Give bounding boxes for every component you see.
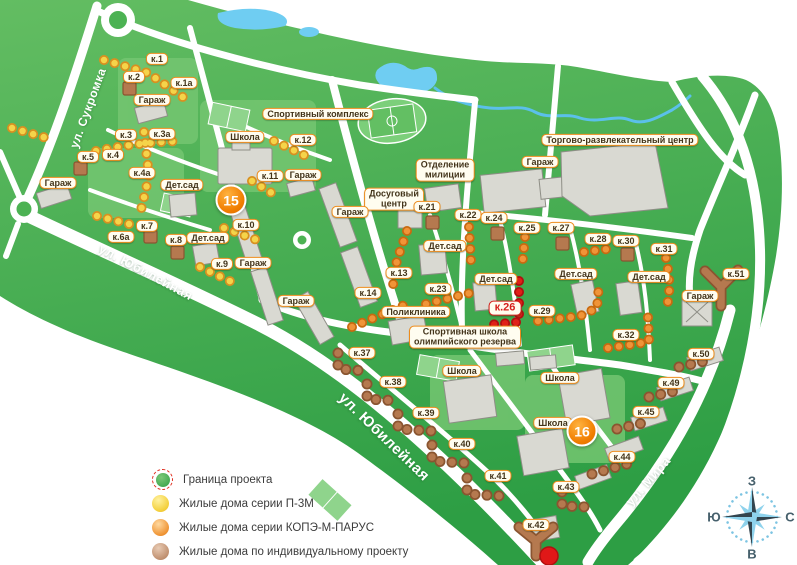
building-label[interactable]: к.8 xyxy=(165,234,187,246)
section-marker[interactable]: 16 xyxy=(567,416,598,447)
building-label[interactable]: к.24 xyxy=(480,212,507,224)
building-label[interactable]: Спортивный комплекс xyxy=(262,108,373,120)
legend-label: Граница проекта xyxy=(183,474,272,486)
building-label[interactable]: к.6а xyxy=(107,231,134,243)
building-label[interactable]: к.10 xyxy=(232,219,259,231)
compass-rose: З С В Ю xyxy=(700,465,797,565)
building-label[interactable]: к.49 xyxy=(657,377,684,389)
building-label[interactable]: к.44 xyxy=(608,451,635,463)
building-label[interactable]: Отделение милиции xyxy=(416,159,475,182)
orange-swatch-icon xyxy=(152,519,169,536)
legend-label: Жилые дома по индивидуальному проекту xyxy=(179,546,408,558)
section-marker[interactable]: 15 xyxy=(216,185,247,216)
building-label[interactable]: к.40 xyxy=(448,438,475,450)
building-label[interactable]: к.25 xyxy=(513,222,540,234)
building-label[interactable]: к.3 xyxy=(115,129,137,141)
building-label[interactable]: к.38 xyxy=(379,376,406,388)
boundary-swatch-icon xyxy=(152,469,173,490)
building-label[interactable]: к.30 xyxy=(612,235,639,247)
yellow-swatch-icon xyxy=(152,495,169,512)
building-label[interactable]: к.27 xyxy=(547,222,574,234)
street-label: ул. Сукромка xyxy=(67,66,109,150)
brown-swatch-icon xyxy=(152,543,169,560)
legend-item: Жилые дома серии КОПЭ-М-ПАРУС xyxy=(152,518,408,537)
building-label[interactable]: Дет.сад xyxy=(423,240,466,252)
building-label[interactable]: к.9 xyxy=(211,258,233,270)
building-label[interactable]: Гараж xyxy=(40,177,77,189)
building-label[interactable]: Гараж xyxy=(278,295,315,307)
building-label[interactable]: Дет.сад xyxy=(627,271,670,283)
building-label[interactable]: к.14 xyxy=(354,287,381,299)
building-label[interactable]: Торгово-развлекательный центр xyxy=(541,134,698,146)
site-plan-map: ул. Сукромкаул. Юбилейнаяул. Юбилейнаяул… xyxy=(0,0,797,565)
building-label[interactable]: к.5 xyxy=(77,151,99,163)
building-label[interactable]: к.43 xyxy=(552,481,579,493)
building-label[interactable]: к.32 xyxy=(612,329,639,341)
building-label[interactable]: Гараж xyxy=(682,290,719,302)
building-label[interactable]: к.21 xyxy=(413,201,440,213)
building-label[interactable]: к.45 xyxy=(632,406,659,418)
building-label[interactable]: Дет.сад xyxy=(160,179,203,191)
building-label[interactable]: к.31 xyxy=(650,243,677,255)
legend-label: Жилые дома серии КОПЭ-М-ПАРУС xyxy=(179,522,374,534)
building-label[interactable]: Поликлиника xyxy=(381,306,450,318)
building-label[interactable]: к.3а xyxy=(148,128,175,140)
building-label[interactable]: к.4а xyxy=(128,167,155,179)
building-label[interactable]: к.26 xyxy=(489,301,522,316)
building-label[interactable]: к.42 xyxy=(522,519,549,531)
building-label[interactable]: к.11 xyxy=(257,170,284,182)
building-label[interactable]: к.23 xyxy=(424,283,451,295)
building-label[interactable]: Дет.сад xyxy=(554,268,597,280)
legend-label: Жилые дома серии П-3М xyxy=(179,498,314,510)
building-label[interactable]: к.1 xyxy=(146,53,168,65)
building-label[interactable]: Школа xyxy=(225,131,264,143)
legend-item: Жилые дома серии П-3М xyxy=(152,494,408,513)
compass-south-label: Ю xyxy=(707,510,720,525)
building-label[interactable]: к.12 xyxy=(289,134,316,146)
building-label[interactable]: Гараж xyxy=(332,206,369,218)
building-label[interactable]: Школа xyxy=(540,372,579,384)
compass-west-label: З xyxy=(748,474,756,489)
building-label[interactable]: к.1а xyxy=(170,77,197,89)
building-label[interactable]: к.39 xyxy=(412,407,439,419)
legend-item: Жилые дома по индивидуальному проекту xyxy=(152,542,408,561)
building-label[interactable]: к.41 xyxy=(484,470,511,482)
building-label[interactable]: к.37 xyxy=(348,347,375,359)
map-legend: Граница проектаЖилые дома серии П-3МЖилы… xyxy=(152,470,408,565)
building-label[interactable]: Спортивная школа олимпийского резерва xyxy=(409,326,521,349)
building-label[interactable]: к.2 xyxy=(123,71,145,83)
building-label[interactable]: Гараж xyxy=(522,156,559,168)
building-label[interactable]: к.29 xyxy=(528,305,555,317)
compass-north-label: С xyxy=(785,510,794,525)
compass-east-label: В xyxy=(747,547,756,562)
building-label[interactable]: к.28 xyxy=(584,233,611,245)
legend-item: Граница проекта xyxy=(152,470,408,489)
building-label[interactable]: Дет.сад xyxy=(186,232,229,244)
building-label[interactable]: Школа xyxy=(442,365,481,377)
building-label[interactable]: Гараж xyxy=(134,94,171,106)
building-label[interactable]: к.51 xyxy=(722,268,749,280)
building-label[interactable]: к.50 xyxy=(687,348,714,360)
building-label[interactable]: Гараж xyxy=(285,169,322,181)
building-label[interactable]: Дет.сад xyxy=(474,273,517,285)
building-label[interactable]: Гараж xyxy=(235,257,272,269)
building-label[interactable]: к.7 xyxy=(136,220,158,232)
street-label: ул. Юбилейная xyxy=(96,241,195,303)
building-label[interactable]: к.13 xyxy=(385,267,412,279)
building-label[interactable]: к.4 xyxy=(102,149,124,161)
building-label[interactable]: к.22 xyxy=(454,209,481,221)
